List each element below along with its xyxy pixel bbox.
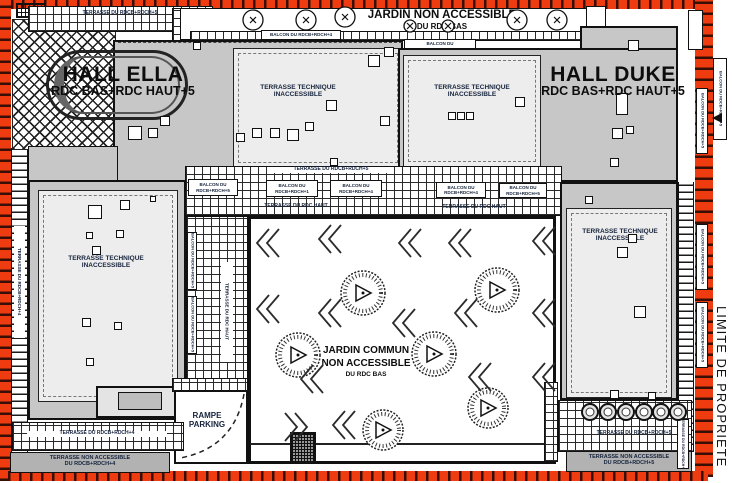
left-edge-terrace-label: TERRASSE DU RDCB+RDCH+4 <box>14 226 25 338</box>
equipment-box <box>88 205 102 219</box>
chevron-decoration <box>318 298 342 328</box>
chevron-decoration <box>532 226 556 256</box>
chevron-decoration <box>532 298 556 328</box>
chevron-decoration <box>392 308 416 338</box>
direction-marker-icon <box>712 113 722 123</box>
equipment-box <box>330 158 338 166</box>
tree-icon <box>466 386 510 430</box>
setback-dashed-line <box>118 42 402 43</box>
equipment-box <box>270 128 280 138</box>
equipment-box <box>617 247 628 258</box>
tree-icon <box>295 9 317 31</box>
site-plan: LIMITE DE PROPRIETE TERRASSE DU RDCB+RDC… <box>0 0 732 483</box>
terrasse-technique-label: TERRASSE TECHNIQUE INACCESSIBLE <box>223 84 373 99</box>
balcony-vertical-plaque: BALCON DU RDCB+RDCH+5 <box>187 296 197 354</box>
hall-ella-name: HALL ELLA <box>33 63 213 87</box>
planter-icon <box>581 403 599 421</box>
equipment-box <box>628 234 637 243</box>
chevron-decoration <box>300 364 324 394</box>
equipment-box <box>193 42 201 50</box>
terrace-strip-bottom-left-label: TERRASSE DU RDCB+RDCH+4 <box>27 431 167 437</box>
equipment-box <box>384 47 394 57</box>
tree-icon <box>361 408 405 452</box>
equipment-box <box>128 126 142 140</box>
equipment-box <box>150 196 156 202</box>
hall-ella-mass-west <box>28 146 118 182</box>
tree-icon <box>242 9 264 31</box>
courtyard-east-strip <box>544 382 558 462</box>
terrace-strip-bottom-right-label: TERRASSE DU RDCB+RDCH+5 <box>578 431 690 437</box>
equipment-box <box>116 230 124 238</box>
tree-icon <box>473 266 521 314</box>
mid-terrace-label: TERRASSE DU RDCB+RDCH+5 <box>271 167 391 173</box>
balcony-vertical-plaque: BALCON DU RDCB+RDCH+5 <box>696 302 708 368</box>
balcony-plaque: BALCON DURDCB+RDCH+4 <box>436 182 486 198</box>
terrasse-rdc-haut-label: TERRASSE DU RDC HAUT <box>236 204 356 210</box>
rampe-parking-label: RAMPE PARKING <box>177 412 237 430</box>
equipment-box <box>92 246 101 255</box>
tree-icon <box>410 330 458 378</box>
terrasse-rdc-haut-vertical-label: TERRASSE DU RDC HAUT <box>221 262 233 362</box>
equipment-box <box>148 128 158 138</box>
limite-de-propriete-label: LIMITE DE PROPRIETE <box>711 293 732 481</box>
tree-icon <box>339 269 387 317</box>
planter-icon <box>617 403 635 421</box>
chevron-decoration <box>532 362 556 392</box>
equipment-box <box>120 200 130 210</box>
non-accessible-terrace-4-label: TERRASSE NON ACCESSIBLE DU RDCB+RDCH+4 <box>20 455 160 467</box>
tree-icon <box>403 19 417 33</box>
chevron-decoration <box>318 224 342 254</box>
equipment-box <box>515 97 525 107</box>
terrasse-technique-label: TERRASSE TECHNIQUE INACCESSIBLE <box>550 228 690 243</box>
chevron-decoration <box>332 410 356 440</box>
hall-ella-levels: RDC BAS+RDC HAUT+5 <box>23 84 223 98</box>
equipment-box <box>626 126 634 134</box>
balcony-strip-top <box>190 31 592 41</box>
balcony-plaque: BALCON DURDCB+RDCH+5 <box>188 179 238 196</box>
balcony-stack-box <box>688 10 703 50</box>
terrasse-technique-top-right <box>403 55 541 167</box>
equipment-box <box>448 112 456 120</box>
equipment-box <box>114 322 122 330</box>
equipment-box <box>305 122 314 131</box>
equipment-box <box>466 112 474 120</box>
equipment-box <box>82 318 91 327</box>
planter-icon <box>669 403 687 421</box>
chevron-decoration <box>256 294 280 324</box>
tree-icon <box>441 19 455 33</box>
balcony-strip-top-plaque: BALCON DU RDCB+RDCH+4 <box>261 30 341 40</box>
chevron-decoration <box>454 298 478 328</box>
terrasse-technique-label: TERRASSE TECHNIQUE INACCESSIBLE <box>36 255 176 270</box>
equipment-box <box>86 358 94 366</box>
equipment-box <box>457 112 465 120</box>
equipment-box <box>612 128 623 139</box>
equipment-box <box>648 392 656 400</box>
chevron-decoration <box>398 228 422 258</box>
non-accessible-terrace-5-label: TERRASSE NON ACCESSIBLE DU RDCB+RDCH+5 <box>572 454 686 466</box>
balcony-vertical-plaque: BALCON DU RDCB+RDCH+5 <box>696 88 708 154</box>
equipment-box <box>368 55 380 67</box>
terrace-vertical-plaque: TERRASSE DU RDCB+RDCH+5 <box>677 419 689 469</box>
equipment-box <box>628 40 639 51</box>
stair-structure-inner <box>118 392 162 410</box>
terrasse-rdc-haut-label: TERRASSE DU RDC HAUT <box>414 205 534 211</box>
balcony-vertical-plaque: BALCON DU RDCB+RDCH+5 <box>713 58 727 140</box>
equipment-box <box>634 306 646 318</box>
equipment-box <box>585 196 593 204</box>
balcony-vertical-plaque: BALCON DU RDCB+RDCH+5 <box>696 224 708 290</box>
planter-icon <box>599 403 617 421</box>
planter-icon <box>652 403 670 421</box>
equipment-box <box>287 129 299 141</box>
balcony-vertical-plaque: BALCON DU RDCB+RDCH+5 <box>187 232 197 290</box>
equipment-box <box>160 116 170 126</box>
chevron-decoration <box>468 362 492 392</box>
equipment-box <box>252 128 262 138</box>
equipment-box <box>610 390 619 399</box>
property-line-left <box>0 0 11 481</box>
equipment-box <box>236 133 245 142</box>
hall-duke-levels: RDC BAS+RDC HAUT+5 <box>523 84 703 98</box>
equipment-box <box>86 232 93 239</box>
chevron-decoration <box>284 412 308 442</box>
planter-icon <box>635 403 653 421</box>
tree-icon <box>506 9 528 31</box>
balcony-plaque: BALCON DURDCB+RDCH+4 <box>330 180 382 197</box>
tree-icon <box>334 6 356 28</box>
equipment-box <box>326 100 337 111</box>
chevron-decoration <box>448 228 472 258</box>
balcony-plaque: BALCON DURDCB+RDCH+5 <box>499 183 547 198</box>
chevron-decoration <box>256 228 280 258</box>
equipment-box <box>610 158 619 167</box>
equipment-box <box>380 116 390 126</box>
balcony-plaque: BALCON DURDCB+RDCH+1 <box>266 180 318 197</box>
hall-duke-name: HALL DUKE <box>523 63 703 87</box>
terrasse-technique-west <box>38 190 178 402</box>
tree-icon <box>546 9 568 31</box>
